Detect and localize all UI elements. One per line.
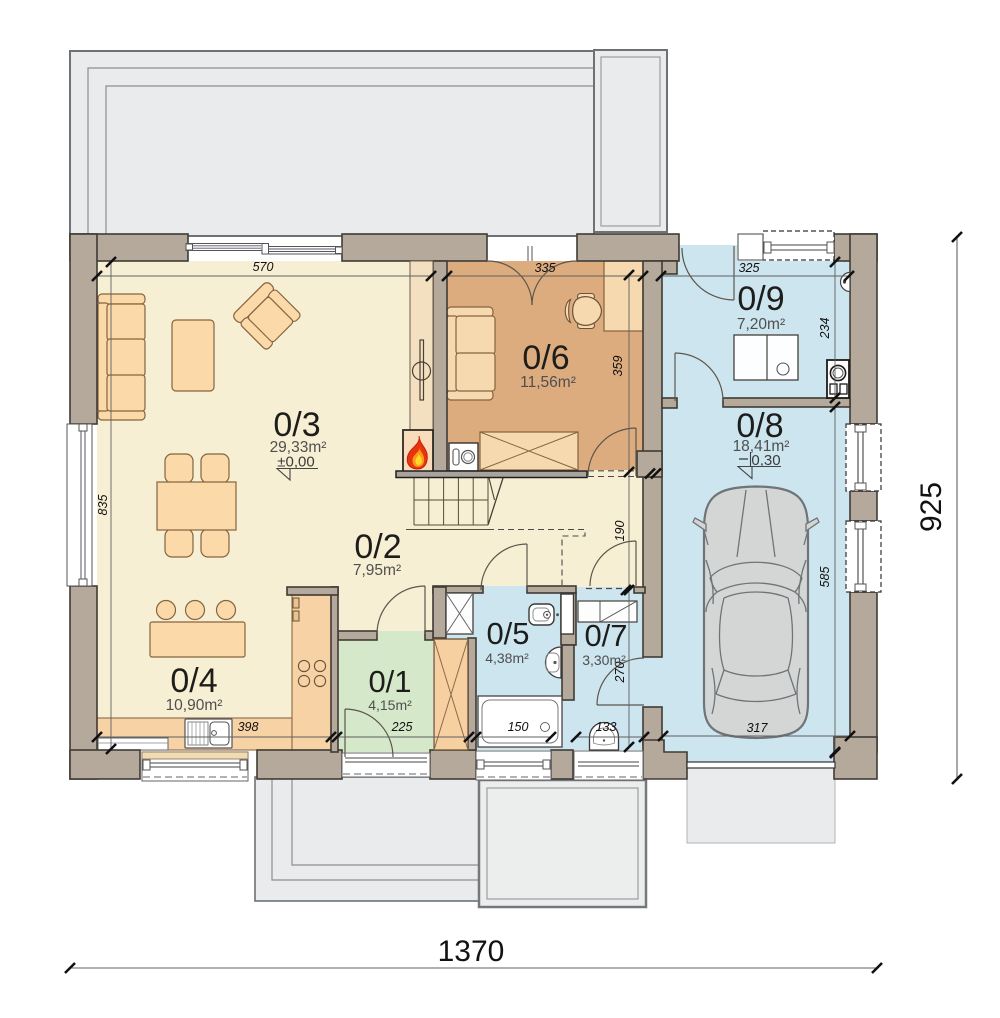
svg-text:835: 835 (96, 495, 110, 516)
svg-text:11,56m²: 11,56m² (520, 374, 576, 391)
svg-text:0/9: 0/9 (737, 280, 784, 318)
svg-text:0/4: 0/4 (170, 662, 217, 700)
svg-text:585: 585 (818, 567, 832, 588)
svg-text:1370: 1370 (438, 935, 505, 968)
svg-text:7,95m²: 7,95m² (353, 562, 401, 579)
svg-text:317: 317 (747, 721, 769, 735)
svg-text:190: 190 (613, 521, 627, 542)
svg-text:398: 398 (238, 720, 259, 734)
svg-text:10,90m²: 10,90m² (166, 697, 223, 714)
svg-text:0/2: 0/2 (354, 528, 401, 566)
svg-text:225: 225 (391, 720, 413, 734)
svg-text:0/1: 0/1 (368, 664, 411, 699)
svg-text:234: 234 (818, 318, 832, 340)
svg-text:4,38m²: 4,38m² (485, 650, 529, 666)
svg-text:359: 359 (611, 356, 625, 377)
svg-text:925: 925 (915, 482, 948, 532)
svg-text:0/5: 0/5 (486, 616, 529, 651)
svg-text:7,20m²: 7,20m² (737, 316, 785, 333)
svg-text:133: 133 (596, 720, 617, 734)
svg-text:570: 570 (253, 260, 274, 274)
svg-text:4,15m²: 4,15m² (368, 697, 412, 713)
svg-text:0/7: 0/7 (584, 618, 627, 653)
svg-text:150: 150 (508, 720, 529, 734)
svg-text:0/6: 0/6 (522, 339, 569, 377)
svg-text:335: 335 (535, 261, 556, 275)
svg-text:3,30m²: 3,30m² (582, 652, 626, 668)
svg-text:325: 325 (739, 261, 760, 275)
